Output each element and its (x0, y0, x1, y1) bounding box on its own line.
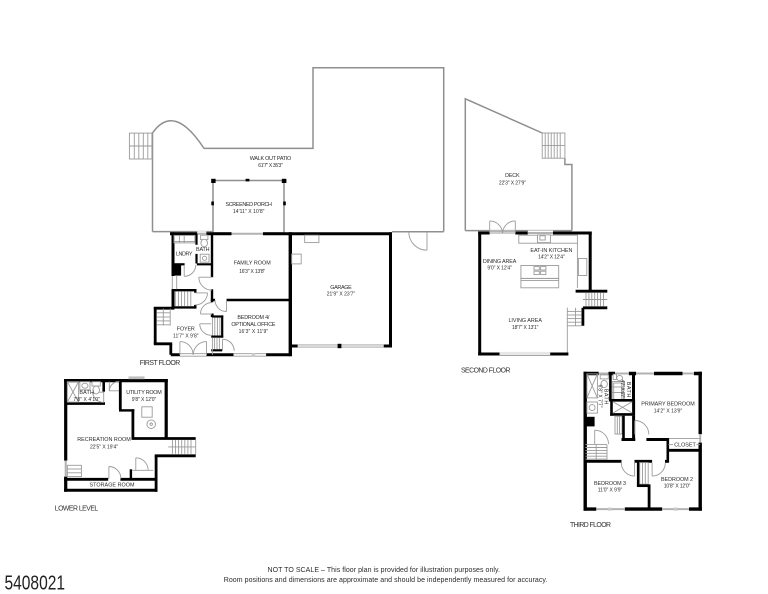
svg-text:61'7" X 35'3": 61'7" X 35'3" (258, 163, 283, 169)
svg-text:DINING AREA: DINING AREA (483, 259, 517, 265)
svg-text:5408021: 5408021 (5, 573, 66, 594)
svg-text:BEDROOM 4/: BEDROOM 4/ (237, 315, 270, 321)
svg-text:9'8" X 12'0": 9'8" X 12'0" (132, 397, 157, 403)
svg-text:STORAGE ROOM: STORAGE ROOM (90, 483, 136, 489)
svg-text:LNDRY: LNDRY (176, 252, 193, 258)
svg-text:FAMILY ROOM: FAMILY ROOM (234, 260, 272, 266)
svg-text:9'0" X 12'4": 9'0" X 12'4" (487, 265, 512, 271)
svg-text:LIVING AREA: LIVING AREA (508, 318, 542, 324)
svg-text:11'7" X 9'8": 11'7" X 9'8" (173, 333, 199, 339)
svg-text:22'3" X 27'9": 22'3" X 27'9" (499, 180, 526, 186)
svg-text:LOWER LEVEL: LOWER LEVEL (55, 505, 99, 512)
svg-text:THIRD FLOOR: THIRD FLOOR (570, 522, 611, 529)
svg-text:10'8" X 12'0": 10'8" X 12'0" (664, 484, 691, 490)
svg-text:CLOSET: CLOSET (674, 443, 696, 449)
svg-text:BEDROOM 2: BEDROOM 2 (661, 477, 693, 483)
svg-text:DECK: DECK (505, 173, 520, 179)
svg-text:BEDROOM 3: BEDROOM 3 (594, 481, 626, 487)
svg-text:4'7" X 6'7": 4'7" X 6'7" (619, 380, 625, 399)
svg-text:FIRST FLOOR: FIRST FLOOR (140, 360, 181, 367)
svg-text:PRIMARY BEDROOM: PRIMARY BEDROOM (641, 401, 695, 407)
svg-text:NOT TO SCALE – This floor plan: NOT TO SCALE – This floor plan is provid… (268, 567, 501, 574)
svg-text:FOYER: FOYER (177, 327, 195, 333)
svg-text:14'2" X 12'4": 14'2" X 12'4" (538, 254, 565, 260)
svg-text:Room positions and dimensions: Room positions and dimensions are approx… (224, 577, 548, 584)
svg-text:WALK OUT PATIO: WALK OUT PATIO (250, 156, 292, 162)
svg-text:BATH: BATH (196, 247, 210, 253)
svg-text:22'5" X 19'4": 22'5" X 19'4" (90, 444, 118, 450)
svg-text:18'7" X 13'1": 18'7" X 13'1" (512, 325, 539, 331)
svg-text:21'9" X 23'7": 21'9" X 23'7" (327, 292, 356, 298)
svg-text:RECREATION ROOM: RECREATION ROOM (77, 437, 131, 443)
svg-text:UTILITY ROOM: UTILITY ROOM (126, 390, 162, 396)
svg-text:SCREENED PORCH: SCREENED PORCH (225, 202, 272, 208)
svg-text:16'3" X 13'8": 16'3" X 13'8" (239, 269, 265, 275)
svg-text:GARAGE: GARAGE (330, 285, 352, 291)
svg-text:11'0" X 9'9": 11'0" X 9'9" (598, 488, 623, 494)
svg-text:OPTIONAL OFFICE: OPTIONAL OFFICE (231, 322, 275, 328)
svg-text:16'3" X 11'9": 16'3" X 11'9" (239, 329, 269, 335)
svg-text:EAT-IN KITCHEN: EAT-IN KITCHEN (530, 248, 572, 254)
svg-text:7'8" X 4'10": 7'8" X 4'10" (73, 397, 100, 403)
svg-text:6'8" X 7'7": 6'8" X 7'7" (597, 385, 603, 408)
svg-text:14'11" X 10'8": 14'11" X 10'8" (233, 209, 265, 215)
svg-text:14'2" X 13'9": 14'2" X 13'9" (654, 409, 683, 415)
svg-text:BATH: BATH (79, 390, 94, 396)
svg-text:SECOND FLOOR: SECOND FLOOR (461, 367, 511, 374)
